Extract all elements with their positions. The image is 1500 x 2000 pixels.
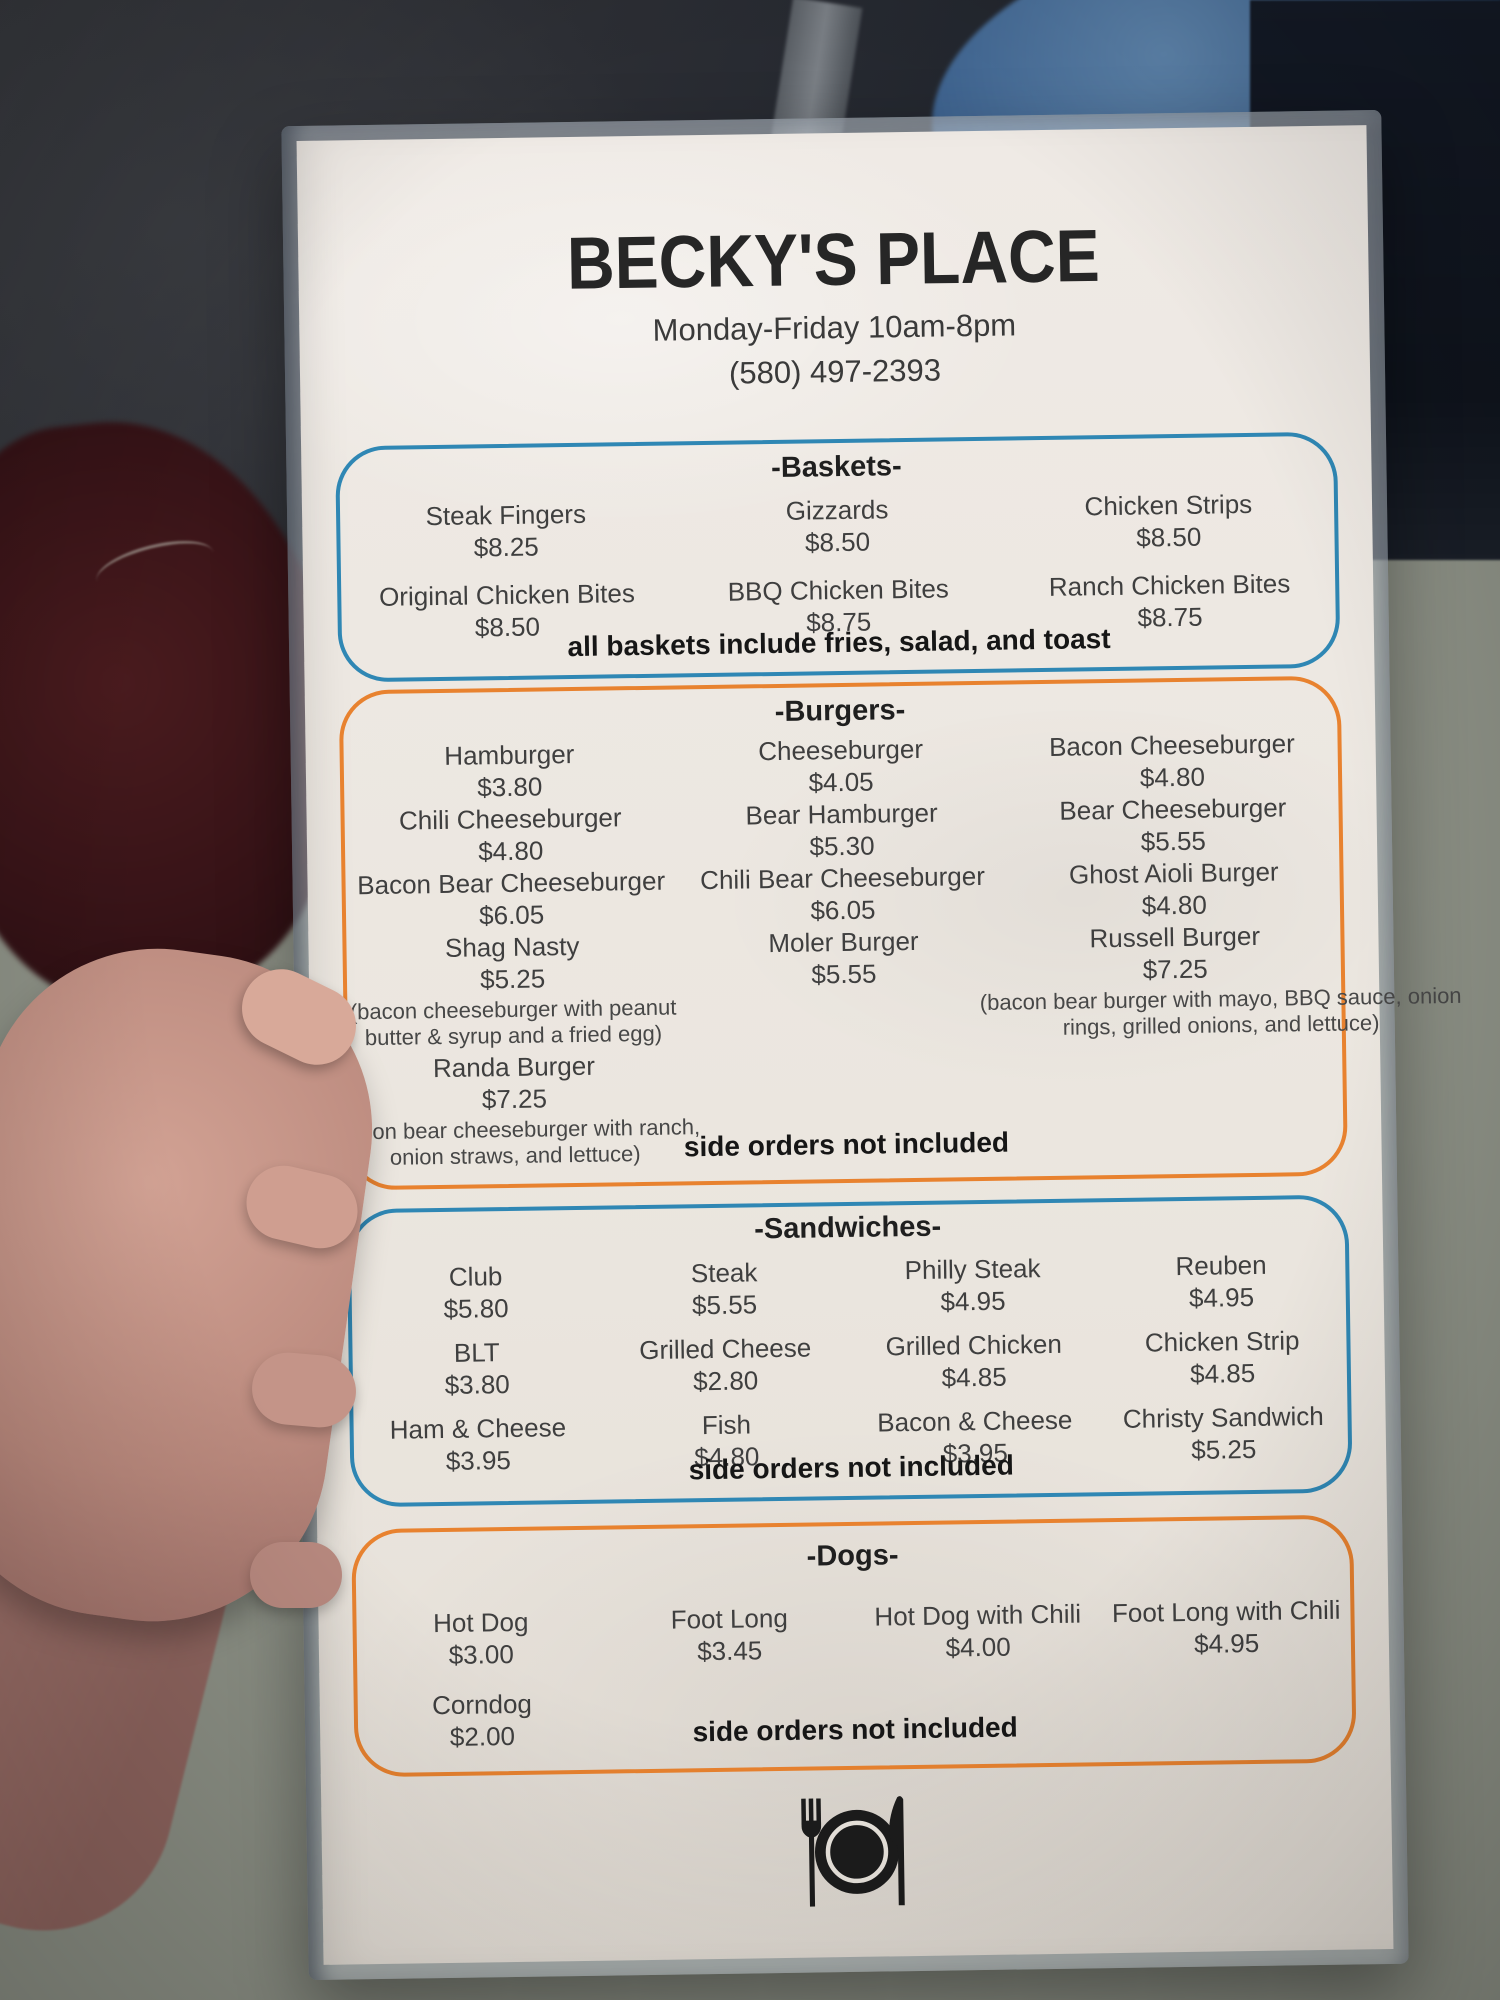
menu-item: Chicken Strips $8.50	[1002, 487, 1334, 556]
item-name: Chili Cheeseburger	[344, 800, 676, 837]
item-name: Original Chicken Bites	[341, 577, 673, 614]
menu-item: Chicken Strip $4.85	[1098, 1324, 1347, 1392]
item-name: Steak	[600, 1255, 849, 1291]
menu-item: Bear Cheeseburger $5.55	[1007, 791, 1339, 860]
item-price: $8.50	[672, 524, 1004, 561]
item-name: Moler Burger	[678, 924, 1010, 961]
menu-item: Bacon Bear Cheeseburger $6.05	[345, 864, 677, 933]
item-price: $3.00	[357, 1637, 606, 1673]
menu-item: Club $5.80	[351, 1259, 600, 1327]
menu-paper: BECKY'S PLACE Monday-Friday 10am-8pm (58…	[297, 125, 1394, 1965]
dogs-items: Hot Dog $3.00 Foot Long $3.45 Hot Dog wi…	[356, 1594, 1351, 1673]
menu-item: Bacon Cheeseburger $4.80	[1006, 727, 1338, 796]
menu-item: Ghost Aioli Burger $4.80	[1008, 855, 1340, 924]
menu-item: Cheeseburger $4.05	[675, 732, 1007, 801]
item-price: $4.80	[1006, 759, 1338, 796]
item-name: Christy Sandwich	[1099, 1400, 1348, 1436]
item-name: Chili Bear Cheeseburger	[677, 860, 1009, 897]
item-price: $4.00	[854, 1629, 1103, 1665]
menu-item: Steak Fingers $8.25	[340, 497, 672, 566]
menu-item: Steak $5.55	[600, 1255, 849, 1323]
item-name: Russell Burger	[1009, 919, 1341, 956]
item-name: BBQ Chicken Bites	[672, 572, 1004, 609]
menu-footer	[321, 1782, 1393, 1927]
item-name: Bacon Bear Cheeseburger	[345, 864, 677, 901]
item-price: $4.95	[849, 1283, 1098, 1319]
item-price: $4.80	[345, 832, 677, 869]
dogs-section: -Dogs- Hot Dog $3.00 Foot Long $3.45 Hot…	[351, 1515, 1357, 1778]
item-name: Cheeseburger	[675, 732, 1007, 769]
item-price: $5.55	[678, 956, 1010, 993]
menu-item: Hamburger $3.80	[343, 736, 675, 805]
item-name: Ham & Cheese	[353, 1411, 602, 1447]
item-name: Foot Long with Chili	[1102, 1594, 1351, 1630]
item-name: Bacon Cheeseburger	[1006, 727, 1338, 764]
pinky-finger	[250, 1542, 342, 1608]
item-name: Hot Dog with Chili	[853, 1597, 1102, 1633]
item-price: $4.85	[1098, 1356, 1347, 1392]
item-name: Hamburger	[343, 736, 675, 773]
item-name: Reuben	[1097, 1248, 1346, 1284]
item-price: $5.80	[352, 1291, 601, 1327]
item-name: Club	[351, 1259, 600, 1295]
item-name: Shag Nasty	[346, 928, 678, 965]
item-name: Philly Steak	[848, 1251, 1097, 1287]
item-price: $4.95	[1097, 1280, 1346, 1316]
menu-item: Grilled Cheese $2.80	[601, 1331, 850, 1399]
item-name: Randa Burger	[348, 1048, 680, 1085]
menu-item: Gizzards $8.50	[671, 492, 1003, 561]
burgers-section-header: -Burgers-	[343, 680, 1337, 736]
item-price: $5.25	[347, 960, 679, 997]
menu-item: BLT $3.80	[352, 1335, 601, 1403]
item-price: $8.50	[1003, 519, 1335, 556]
item-name: Fish	[602, 1407, 851, 1443]
burgers-section: -Burgers- Hamburger $3.80 Cheeseburger $…	[339, 676, 1348, 1191]
item-price: $3.45	[605, 1633, 854, 1669]
menu-sheet: BECKY'S PLACE Monday-Friday 10am-8pm (58…	[281, 110, 1408, 1980]
item-price: $8.25	[340, 529, 672, 566]
restaurant-name: BECKY'S PLACE	[298, 209, 1369, 310]
item-name: Grilled Chicken	[849, 1327, 1098, 1363]
item-price: $3.80	[344, 768, 676, 805]
item-price: $4.95	[1102, 1626, 1351, 1662]
item-name: Ranch Chicken Bites	[1004, 567, 1336, 604]
item-name: Grilled Cheese	[601, 1331, 850, 1367]
item-name: Bear Hamburger	[676, 796, 1008, 833]
item-name: Hot Dog	[356, 1605, 605, 1641]
item-price: $4.05	[675, 764, 1007, 801]
item-name: Chicken Strip	[1098, 1324, 1347, 1360]
item-price: $2.80	[601, 1363, 850, 1399]
menu-item: Hot Dog $3.00	[356, 1605, 605, 1673]
item-price: $4.80	[1008, 887, 1340, 924]
menu-item: Foot Long with Chili $4.95	[1102, 1594, 1351, 1662]
menu-item: Foot Long $3.45	[605, 1601, 854, 1669]
menu-header: BECKY'S PLACE Monday-Friday 10am-8pm (58…	[297, 125, 1371, 399]
item-price: $6.05	[346, 896, 678, 933]
dogs-section-header: -Dogs-	[355, 1519, 1350, 1581]
menu-item: Bear Hamburger $5.30	[676, 796, 1008, 865]
item-price: $5.55	[1007, 823, 1339, 860]
menu-item: Grilled Chicken $4.85	[849, 1327, 1098, 1395]
item-name: Ghost Aioli Burger	[1008, 855, 1340, 892]
item-price: $3.80	[353, 1367, 602, 1403]
menu-item: Reuben $4.95	[1097, 1248, 1346, 1316]
burgers-items: Hamburger $3.80 Cheeseburger $4.05 Bacon…	[343, 727, 1341, 1052]
baskets-section-header: -Baskets-	[339, 436, 1333, 492]
sandwiches-section: -Sandwiches- Club $5.80 Steak $5.55 Phil…	[346, 1195, 1352, 1508]
menu-item: Philly Steak $4.95	[848, 1251, 1097, 1319]
item-price: $6.05	[677, 892, 1009, 929]
item-description: (bacon bear burger with mayo, BBQ sauce,…	[950, 982, 1492, 1042]
menu-item: Hot Dog with Chili $4.00	[853, 1597, 1102, 1665]
item-price: $5.55	[600, 1287, 849, 1323]
menu-item: Chili Bear Cheeseburger $6.05	[677, 860, 1009, 929]
item-price: $7.25	[1009, 951, 1341, 988]
item-name: Gizzards	[671, 492, 1003, 529]
menu-item: Chili Cheeseburger $4.80	[344, 800, 676, 869]
baskets-section: -Baskets- Steak Fingers $8.25 Gizzards $…	[335, 432, 1340, 683]
item-name: Foot Long	[605, 1601, 854, 1637]
menu-item: Russell Burger $7.25 (bacon bear burger …	[1009, 919, 1342, 1042]
item-description: (bacon cheeseburger with peanut butter &…	[321, 994, 705, 1052]
sandwiches-section-header: -Sandwiches-	[350, 1199, 1344, 1253]
item-name: Bear Cheeseburger	[1007, 791, 1339, 828]
sandwiches-items: Club $5.80 Steak $5.55 Philly Steak $4.9…	[351, 1248, 1348, 1479]
item-price: $5.30	[676, 828, 1008, 865]
place-setting-icon	[781, 1789, 933, 1915]
item-name: Chicken Strips	[1002, 487, 1334, 524]
item-price: $4.85	[850, 1359, 1099, 1395]
phone-number: (580) 497-2393	[300, 345, 1370, 399]
item-price: $7.25	[349, 1080, 681, 1117]
item-name: Bacon & Cheese	[850, 1403, 1099, 1439]
item-name: BLT	[352, 1335, 601, 1371]
menu-item: Shag Nasty $5.25 (bacon cheeseburger wit…	[346, 928, 679, 1051]
item-name: Steak Fingers	[340, 497, 672, 534]
item-name: Corndog	[358, 1687, 607, 1723]
